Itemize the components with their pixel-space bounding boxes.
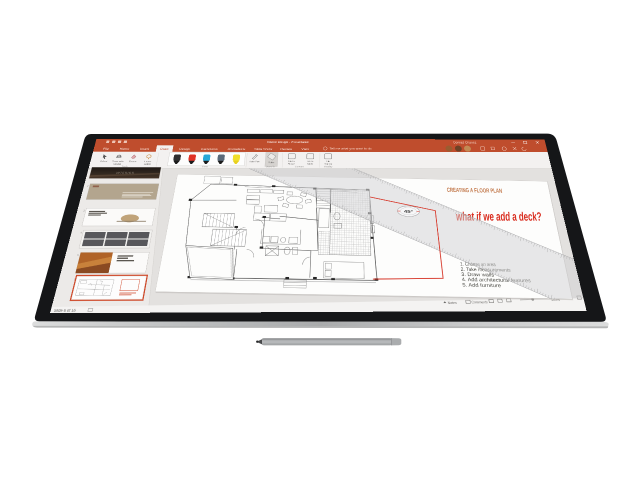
svg-text:Replay: Replay <box>324 166 333 168</box>
svg-text:INTERIOR: INTERIOR <box>116 172 135 175</box>
svg-text:Comments: Comments <box>471 299 489 304</box>
svg-text:Eraser: Eraser <box>129 161 137 163</box>
svg-text:Slide Show: Slide Show <box>254 147 273 151</box>
svg-text:Conrad Chavez: Conrad Chavez <box>453 141 477 145</box>
svg-text:Convert: Convert <box>295 165 304 168</box>
svg-text:Transitions: Transitions <box>200 147 218 151</box>
svg-text:Animations: Animations <box>227 147 245 151</box>
svg-text:Home: Home <box>119 147 130 151</box>
svg-text:Math: Math <box>307 163 314 166</box>
svg-text:File: File <box>103 147 110 151</box>
svg-text:Design: Design <box>179 147 191 151</box>
svg-text:View: View <box>301 147 309 151</box>
svg-text:5. Add furniture: 5. Add furniture <box>462 281 503 288</box>
svg-text:Draw: Draw <box>160 147 170 151</box>
svg-text:Slide 6 of 16: Slide 6 of 16 <box>53 308 77 313</box>
svg-text:Select: Select <box>100 160 108 163</box>
svg-text:Notes: Notes <box>447 300 458 305</box>
svg-text:Auto Pen: Auto Pen <box>249 160 261 163</box>
svg-text:Insert: Insert <box>140 147 150 151</box>
svg-text:Review: Review <box>280 147 293 151</box>
svg-text:Interior Design - Presentation: Interior Design - Presentation <box>267 140 310 144</box>
svg-text:Ink to: Ink to <box>307 160 314 163</box>
svg-text:Select: Select <box>143 163 151 166</box>
svg-text:Draw with: Draw with <box>112 160 125 163</box>
svg-text:Ink to: Ink to <box>288 160 295 163</box>
svg-text:45°: 45° <box>404 209 414 213</box>
svg-text:CREATING A FLOOR PLAN: CREATING A FLOOR PLAN <box>447 188 503 195</box>
svg-text:Stencils: Stencils <box>266 165 276 168</box>
svg-text:Tell me what you want to do: Tell me what you want to do <box>329 147 371 151</box>
svg-text:Ruler: Ruler <box>268 162 274 164</box>
